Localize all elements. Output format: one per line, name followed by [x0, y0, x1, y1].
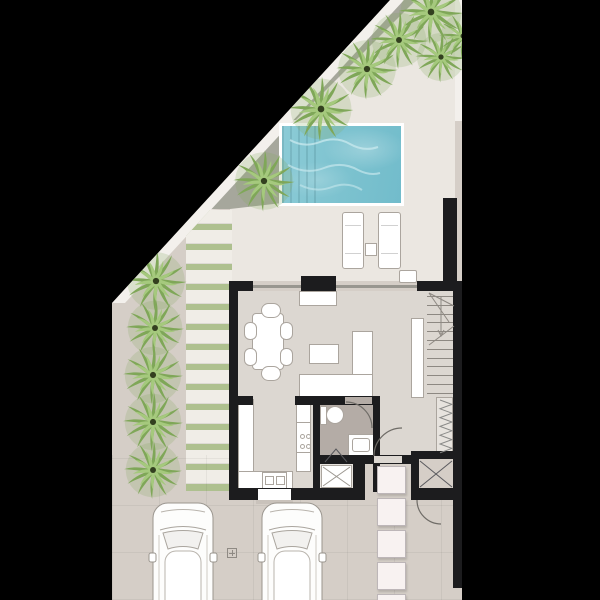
- dining-chair-left-2: [244, 348, 257, 366]
- pool-steps: [282, 126, 320, 203]
- wall-right: [453, 281, 462, 588]
- stove-burner: [300, 434, 305, 439]
- stepping-stone: [377, 498, 406, 526]
- understairs-closet-bg: [436, 397, 453, 454]
- stepping-stone: [377, 594, 406, 600]
- dining-chair-top: [261, 303, 281, 318]
- front-door-leaf: [258, 489, 291, 500]
- stair-tread: [427, 331, 453, 332]
- outdoor-bbq-counter: [301, 276, 336, 291]
- garden-step-plank: [186, 230, 232, 244]
- garden-step-plank: [186, 350, 232, 364]
- stove: [296, 422, 311, 453]
- wall-left: [229, 281, 238, 500]
- sofa-chaise: [352, 331, 373, 375]
- sun-lounger-right: [378, 212, 401, 269]
- stair-tread: [427, 349, 453, 350]
- wall-top-right: [417, 281, 457, 291]
- vanity-basin: [352, 438, 370, 452]
- stepping-stone: [377, 530, 406, 558]
- stair-tread: [427, 366, 453, 367]
- sideboard: [299, 291, 337, 306]
- shower-tray: [321, 465, 352, 488]
- stair-tread: [427, 322, 453, 323]
- garden-step-plank: [186, 270, 232, 284]
- stair-tread: [427, 296, 453, 297]
- wall-bottom-left: [229, 488, 360, 500]
- stair-stringer: [411, 318, 424, 398]
- sun-lounger-left: [342, 212, 364, 269]
- entry-door-opening: [374, 456, 402, 463]
- garden-step-plank: [186, 370, 232, 384]
- lounger-side-table: [365, 243, 377, 256]
- garden-step-plank: [186, 250, 232, 264]
- garden-step-plank: [186, 410, 232, 424]
- dining-chair-right-1: [280, 322, 293, 340]
- front-door-step: [256, 500, 293, 504]
- path-right-strip: [455, 0, 462, 121]
- dining-chair-right-2: [280, 348, 293, 366]
- garden-step-plank: [186, 390, 232, 404]
- stepping-stone: [377, 466, 406, 494]
- garden-step-plank: [186, 430, 232, 444]
- kitchen-counter-left: [238, 399, 254, 472]
- wall-kitchen-stub: [229, 396, 253, 405]
- wall-bathroom-mid: [313, 455, 355, 464]
- stove-burner: [306, 434, 311, 439]
- wall-storage-bottom: [411, 488, 457, 500]
- dining-chair-bottom: [261, 366, 281, 381]
- sink-basin: [265, 476, 274, 485]
- property-plot: [0, 0, 600, 600]
- stair-tread: [427, 375, 453, 376]
- garden-steps-strip: [186, 210, 232, 491]
- garden-step-plank: [186, 330, 232, 344]
- garden-step-plank: [186, 290, 232, 304]
- wall-bathroom-left: [313, 396, 320, 492]
- floor-plan-canvas: [0, 0, 600, 600]
- bathroom-door-opening: [345, 397, 372, 404]
- stair-tread: [427, 384, 453, 385]
- stair-tread: [427, 393, 453, 394]
- stepping-stone: [377, 562, 406, 590]
- stair-tread: [427, 314, 453, 315]
- stair-tread: [427, 305, 453, 306]
- terrace-privacy-wall: [443, 198, 457, 281]
- stair-tread: [427, 340, 453, 341]
- storage-room-floor: [419, 459, 453, 488]
- toilet-bowl: [326, 406, 344, 424]
- stove-burner: [300, 444, 305, 449]
- dining-chair-left-1: [244, 322, 257, 340]
- stair-tread: [427, 358, 453, 359]
- sink-basin: [276, 476, 285, 485]
- terrace-door-mat: [399, 270, 417, 283]
- stove-burner: [306, 444, 311, 449]
- driveway-drain: [227, 548, 237, 558]
- coffee-table: [309, 344, 339, 364]
- garden-step-plank: [186, 310, 232, 324]
